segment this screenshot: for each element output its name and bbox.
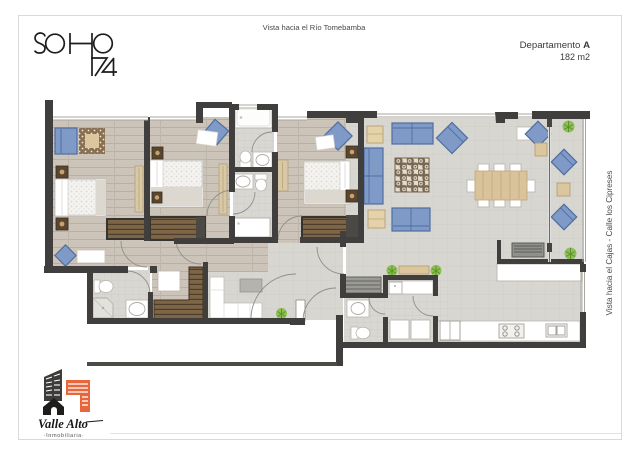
svg-text:Vista hacia el Río Tomebamba: Vista hacia el Río Tomebamba (263, 23, 366, 32)
svg-text:·Inmobiliaria·: ·Inmobiliaria· (44, 433, 85, 439)
svg-text:Vista hacia el Cajas - Calle l: Vista hacia el Cajas - Calle los Ciprese… (605, 170, 614, 315)
svg-text:182 m2: 182 m2 (560, 52, 590, 62)
svg-text:Departamento A: Departamento A (520, 40, 590, 51)
svg-text:Valle Alto: Valle Alto (38, 417, 88, 431)
